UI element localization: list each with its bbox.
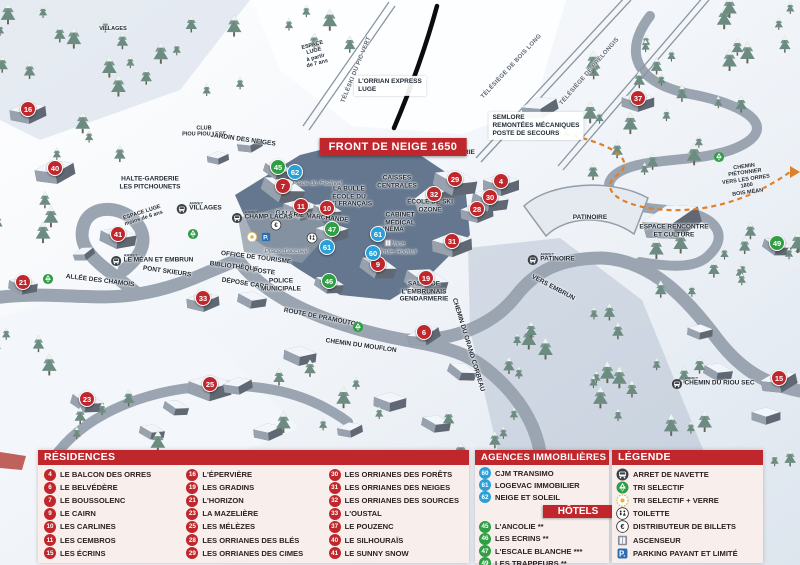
legende-item-label: ARRET DE NAVETTE — [633, 470, 709, 479]
map-marker-60[interactable]: 60 — [365, 245, 381, 261]
marker-badge: 47 — [479, 545, 491, 557]
legend-item-25: 25LES MÉLÈZES — [182, 520, 324, 533]
marker-badge: 29 — [186, 547, 198, 559]
legend-item-10: 10LES CARLINES — [40, 520, 182, 533]
legend-item-29: 29LES ORRIANES DES CIMES — [182, 547, 324, 560]
legende-item-label: TOILETTE — [633, 509, 670, 518]
legend-item-15: 15LES ÉCRINS — [40, 547, 182, 560]
recycle-icon — [616, 481, 629, 494]
bus-stop-patinoire: ARRETPATINOIRE — [527, 253, 574, 264]
map-marker-46[interactable]: 46 — [321, 273, 337, 289]
marker-badge: 45 — [479, 521, 491, 533]
legend-item-45: 45L'ANCOLIE ** — [475, 521, 609, 533]
bus-icon — [527, 253, 538, 264]
parking-icon: P. — [616, 547, 629, 560]
legend-item-11: 11LES CEMBROS — [40, 533, 182, 546]
legend-item-label: LE CAIRN — [60, 509, 96, 518]
agences-title: AGENCES IMMOBILIÈRES — [475, 450, 609, 465]
legend-item-46: 46LES ECRINS ** — [475, 533, 609, 545]
map-marker-33[interactable]: 33 — [195, 290, 211, 306]
legende-item-label: TRI SELECTIF — [633, 483, 684, 492]
marker-badge: 32 — [329, 495, 341, 507]
map-label: PATINOIRE — [573, 214, 607, 222]
marker-badge: 25 — [186, 521, 198, 533]
recycle-icon — [714, 152, 725, 163]
legend-item-7: 7LE BOUSSOLENC — [40, 494, 182, 507]
legend-item-41: 41LE SUNNY SNOW — [325, 547, 467, 560]
legende-item: P.PARKING PAYANT ET LIMITÉ — [612, 547, 763, 560]
map-marker-11[interactable]: 11 — [293, 198, 309, 214]
map-marker-25[interactable]: 25 — [202, 376, 218, 392]
map-marker-62[interactable]: 62 — [287, 164, 303, 180]
residences-title: RÉSIDENCES — [38, 450, 469, 465]
bus-stop-champ-lacas: ARRETCHAMP LACAS — [232, 211, 293, 222]
marker-badge: 7 — [44, 495, 56, 507]
legend-item-37: 37LE POUZENC — [325, 520, 467, 533]
legend-item-label: LES MÉLÈZES — [202, 522, 255, 531]
map-label: VILLAGES — [99, 26, 127, 32]
map-marker-19[interactable]: 19 — [418, 270, 434, 286]
legend-item-label: CJM TRANSIMO — [495, 469, 554, 478]
legend-item-label: L'ESCALE BLANCHE *** — [495, 547, 582, 556]
map-marker-61[interactable]: 61 — [319, 239, 335, 255]
front-de-neige-banner: FRONT DE NEIGE 1650 — [320, 138, 467, 156]
legend-item-label: LE BALCON DES ORRES — [60, 470, 151, 479]
svg-text:P.: P. — [263, 235, 269, 242]
legende-item: ARRET DE NAVETTE — [612, 468, 763, 481]
legend-item-16: 16L'ÉPERVIÈRE — [182, 468, 324, 481]
map-label: HALTE-GARDERIE LES PITCHOUNETS — [119, 175, 180, 190]
hotels-list: 45L'ANCOLIE **46LES ECRINS **47L'ESCALE … — [475, 519, 609, 565]
map-marker-15[interactable]: 15 — [771, 370, 787, 386]
recycle-icon — [43, 274, 54, 285]
map-label: POLICE MUNICIPALE — [261, 277, 301, 292]
legend-item-label: LE POUZENC — [345, 522, 394, 531]
map-marker-41[interactable]: 41 — [110, 226, 126, 242]
map-marker-21[interactable]: 21 — [15, 274, 31, 290]
residences-column: 16L'ÉPERVIÈRE19LES GRADINS21L'HORIZON23L… — [182, 468, 324, 560]
marker-badge: 16 — [186, 469, 198, 481]
map-marker-45[interactable]: 45 — [270, 159, 286, 175]
marker-badge: 15 — [44, 547, 56, 559]
legend-item-40: 40LE SILHOURAÏS — [325, 533, 467, 546]
marker-badge: 60 — [479, 467, 491, 479]
legende-item-label: PARKING PAYANT ET LIMITÉ — [633, 549, 738, 558]
map-marker-10[interactable]: 10 — [319, 200, 335, 216]
svg-text:P.: P. — [619, 549, 625, 558]
legend-item-62: 62NEIGE ET SOLEIL — [475, 491, 609, 503]
recycle-glass-icon — [247, 232, 258, 243]
marker-badge: 46 — [479, 533, 491, 545]
legend-item-label: L'ÉPERVIÈRE — [202, 470, 252, 479]
map-marker-37[interactable]: 37 — [630, 90, 646, 106]
bus-icon — [176, 202, 187, 213]
recycle-icon — [188, 229, 199, 240]
legende-item: ASCENSEUR — [612, 533, 763, 546]
marker-badge: 19 — [186, 482, 198, 494]
legend-item-49: 49LES TRAPPEURS ** — [475, 557, 609, 565]
legend-item-label: L'ANCOLIE ** — [495, 522, 544, 531]
marker-badge: 11 — [44, 534, 56, 546]
residences-panel: RÉSIDENCES 4LE BALCON DES ORRES6LE BELVÉ… — [38, 450, 469, 563]
map-label: ESPACE RENCONTRE ET CULTURE — [639, 223, 708, 238]
legend-item-label: LE SUNNY SNOW — [345, 549, 409, 558]
toilet-icon — [616, 507, 629, 520]
legend-item-label: LA MAZELIÈRE — [202, 509, 258, 518]
map-label: Place du Festival — [292, 180, 342, 188]
legend-item-label: LES GRADINS — [202, 483, 254, 492]
legend-item-label: LES ORRIANES DES SOURCES — [345, 496, 459, 505]
marker-badge: 62 — [479, 491, 491, 503]
legend-item-label: LES TRAPPEURS ** — [495, 559, 567, 565]
legend-item-label: LE BELVÉDÈRE — [60, 483, 118, 492]
marker-badge: 30 — [329, 469, 341, 481]
svg-text:€: € — [621, 524, 625, 532]
recycle-glass-icon — [616, 494, 629, 507]
legend-item-label: LOGEVAC IMMOBILIER — [495, 481, 580, 490]
parking-icon: P. — [261, 232, 272, 243]
marker-badge: 21 — [186, 495, 198, 507]
residences-list: 4LE BALCON DES ORRES6LE BELVÉDÈRE7LE BOU… — [38, 465, 469, 563]
legende-item-label: DISTRIBUTEUR DE BILLETS — [633, 522, 736, 531]
bus-stop-chemin-du-riou-sec: ARRETCHEMIN DU RIOU SEC — [671, 377, 754, 388]
map-marker-31[interactable]: 31 — [444, 233, 460, 249]
residences-column: 4LE BALCON DES ORRES6LE BELVÉDÈRE7LE BOU… — [40, 468, 182, 560]
marker-badge: 23 — [186, 508, 198, 520]
legend-item-label: LES ORRIANES DES FORÊTS — [345, 470, 453, 479]
atm-icon: € — [271, 220, 282, 231]
legend-item-60: 60CJM TRANSIMO — [475, 467, 609, 479]
map-marker-29[interactable]: 29 — [447, 171, 463, 187]
map-label: Place d'accueil — [264, 248, 307, 256]
marker-badge: 6 — [44, 482, 56, 494]
toilet-icon — [307, 233, 318, 244]
map-marker-30[interactable]: 30 — [482, 189, 498, 205]
map-marker-49[interactable]: 49 — [769, 235, 785, 251]
legend-item-label: LES ORRIANES DES BLÉS — [202, 536, 299, 545]
legende-item: TRI SELECTIF + VERRE — [612, 494, 763, 507]
marker-badge: 9 — [44, 508, 56, 520]
bus-stop-villages: ARRETVILLAGES — [176, 202, 222, 213]
legend-item-30: 30LES ORRIANES DES FORÊTS — [325, 468, 467, 481]
legend-item-label: LE SILHOURAÏS — [345, 536, 404, 545]
marker-badge: 41 — [329, 547, 341, 559]
legend-item-label: LES CARLINES — [60, 522, 116, 531]
legend-item-label: LES CEMBROS — [60, 536, 116, 545]
legend-item-label: LES ORRIANES DES CIMES — [202, 549, 303, 558]
map-marker-28[interactable]: 28 — [469, 201, 485, 217]
bus-icon — [616, 468, 629, 481]
legend-item-21: 21L'HORIZON — [182, 494, 324, 507]
legend-item-32: 32LES ORRIANES DES SOURCES — [325, 494, 467, 507]
elevator-icon — [383, 238, 394, 249]
legend-item-28: 28LES ORRIANES DES BLÉS — [182, 533, 324, 546]
residences-column: 30LES ORRIANES DES FORÊTS31LES ORRIANES … — [325, 468, 467, 560]
map-label: CAISSES CENTRALES — [377, 174, 417, 189]
legend-item-9: 9LE CAIRN — [40, 507, 182, 520]
map-label: CABINET MÉDICAL — [385, 211, 415, 226]
legende-item: TOILETTE — [612, 507, 763, 520]
legend-item-label: LES ÉCRINS — [60, 549, 106, 558]
agences-hotels-panel: AGENCES IMMOBILIÈRES 60CJM TRANSIMO61LOG… — [475, 450, 609, 563]
legend-item-label: LE BOUSSOLENC — [60, 496, 125, 505]
legend-item-23: 23LA MAZELIÈRE — [182, 507, 324, 520]
map-label: L'ORRIAN EXPRESS LUGE — [354, 76, 426, 96]
map-marker-61[interactable]: 61 — [370, 226, 386, 242]
legende-item-label: ASCENSEUR — [633, 536, 681, 545]
marker-badge: 37 — [329, 521, 341, 533]
resort-map-page: FRONT DE NEIGE 1650 L'ORRIAN EXPRESS LUG… — [0, 0, 800, 565]
legende-item: TRI SELECTIF — [612, 481, 763, 494]
hotels-title: HÔTELS — [543, 505, 613, 518]
atm-icon: € — [616, 520, 629, 533]
map-marker-47[interactable]: 47 — [324, 221, 340, 237]
map-marker-6[interactable]: 6 — [416, 324, 432, 340]
legend-item-6: 6LE BELVÉDÈRE — [40, 481, 182, 494]
map-marker-16[interactable]: 16 — [20, 101, 36, 117]
bus-icon — [232, 211, 243, 222]
marker-badge: 31 — [329, 482, 341, 494]
legende-list: ARRET DE NAVETTETRI SELECTIFTRI SELECTIF… — [612, 465, 763, 560]
marker-badge: 40 — [329, 534, 341, 546]
bus-icon — [671, 377, 682, 388]
legend-item-61: 61LOGEVAC IMMOBILIER — [475, 479, 609, 491]
bus-stop-le-m-an-et-embrun: ARRETLE MÉAN ET EMBRUN — [111, 254, 194, 265]
map-marker-23[interactable]: 23 — [79, 391, 95, 407]
marker-badge: 33 — [329, 508, 341, 520]
map-marker-7[interactable]: 7 — [275, 178, 291, 194]
legend-item-label: LES ECRINS ** — [495, 534, 549, 543]
map-marker-40[interactable]: 40 — [47, 160, 63, 176]
map-label: SEMLORE REMONTÉES MÉCANIQUES POSTE DE SE… — [488, 112, 583, 140]
agences-list: 60CJM TRANSIMO61LOGEVAC IMMOBILIER62NEIG… — [475, 465, 609, 504]
legende-panel: LÉGENDE ARRET DE NAVETTETRI SELECTIFTRI … — [612, 450, 763, 563]
legende-title: LÉGENDE — [612, 450, 763, 465]
legende-item-label: TRI SELECTIF + VERRE — [633, 496, 719, 505]
bus-icon — [111, 254, 122, 265]
recycle-icon — [353, 322, 364, 333]
elevator-icon — [616, 534, 629, 547]
legend-item-label: L'HORIZON — [202, 496, 243, 505]
legend-item-label: NEIGE ET SOLEIL — [495, 493, 560, 502]
legend-item-label: L'OUSTAL — [345, 509, 382, 518]
marker-badge: 28 — [186, 534, 198, 546]
legend-item-label: LES ORRIANES DES NEIGES — [345, 483, 451, 492]
marker-badge: 49 — [479, 557, 491, 565]
legend-item-4: 4LE BALCON DES ORRES — [40, 468, 182, 481]
marker-badge: 61 — [479, 479, 491, 491]
map-marker-32[interactable]: 32 — [426, 186, 442, 202]
legend-item-31: 31LES ORRIANES DES NEIGES — [325, 481, 467, 494]
legend-item-47: 47L'ESCALE BLANCHE *** — [475, 545, 609, 557]
legende-item: €DISTRIBUTEUR DE BILLETS — [612, 520, 763, 533]
marker-badge: 10 — [44, 521, 56, 533]
legend-item-33: 33L'OUSTAL — [325, 507, 467, 520]
marker-badge: 4 — [44, 469, 56, 481]
legend-item-19: 19LES GRADINS — [182, 481, 324, 494]
map-marker-4[interactable]: 4 — [493, 173, 509, 189]
